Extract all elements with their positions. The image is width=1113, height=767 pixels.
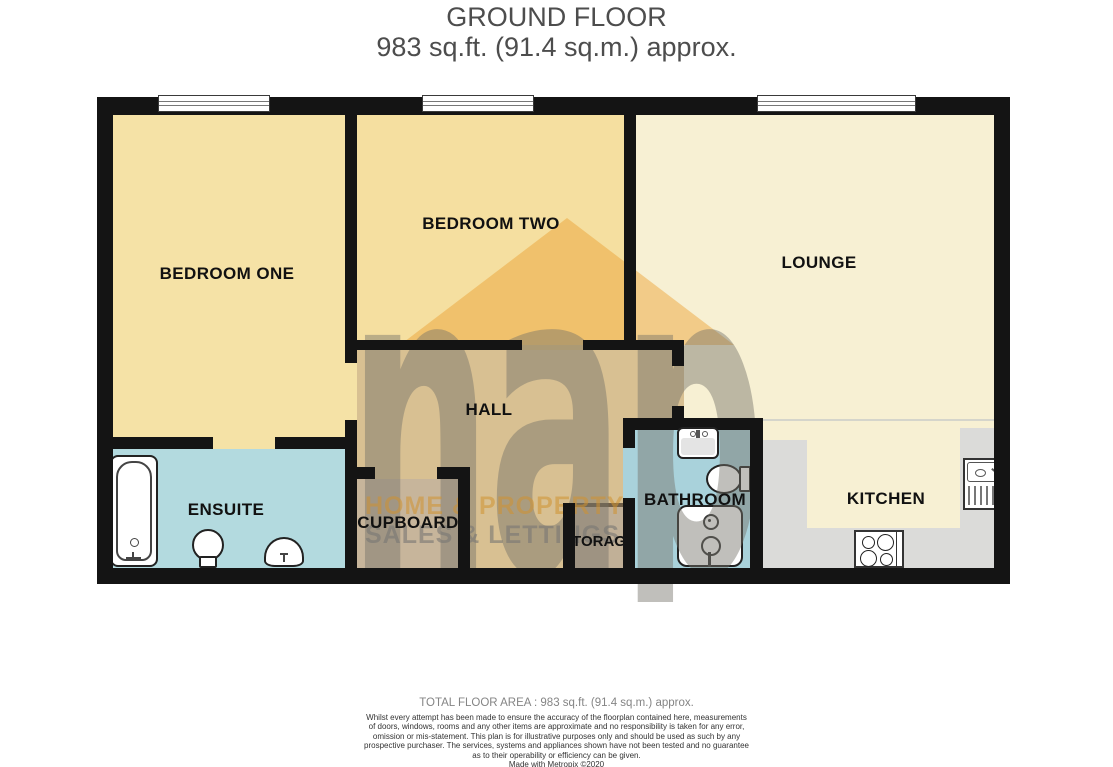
shower-icon bbox=[677, 505, 743, 567]
wall-bedroom-two-bottom-left bbox=[352, 340, 522, 350]
window-lounge bbox=[757, 95, 916, 112]
toilet-cistern-icon bbox=[199, 556, 217, 568]
door-bathroom bbox=[623, 448, 635, 498]
window-bedroom-one bbox=[158, 95, 270, 112]
door-bedroom-two-hall bbox=[522, 340, 583, 350]
page-title: GROUND FLOOR 983 sq.ft. (91.4 sq.m.) app… bbox=[207, 2, 907, 62]
wall-outer-bottom bbox=[97, 568, 1010, 584]
wall-bedroom-two-bottom-right bbox=[583, 340, 684, 350]
window-bedroom-two bbox=[422, 95, 534, 112]
wall-storage-left bbox=[563, 503, 575, 568]
room-label-ensuite: ENSUITE bbox=[188, 500, 264, 520]
wall-bedroom-two-lounge bbox=[624, 115, 636, 350]
room-hall-floor bbox=[470, 503, 563, 568]
footer: TOTAL FLOOR AREA : 983 sq.ft. (91.4 sq.m… bbox=[277, 697, 837, 767]
wall-bathroom-right bbox=[750, 430, 763, 568]
wall-outer-left bbox=[97, 97, 113, 584]
floor-name: GROUND FLOOR bbox=[207, 2, 907, 32]
total-floor-area: TOTAL FLOOR AREA : 983 sq.ft. (91.4 sq.m… bbox=[277, 697, 837, 709]
door-cupboard bbox=[375, 467, 437, 479]
door-hall-lounge bbox=[672, 366, 684, 406]
room-label-lounge: LOUNGE bbox=[781, 253, 856, 273]
door-bedroom-one-ensuite bbox=[213, 437, 275, 449]
wall-outer-right bbox=[994, 97, 1010, 584]
credit-text: Made with Metropix ©2020 bbox=[277, 760, 837, 767]
wall-bedroom-one-bottom-left bbox=[97, 437, 213, 449]
wall-bedroom-one-bottom-right bbox=[275, 437, 357, 449]
door-bedroom-one-hall bbox=[345, 363, 357, 420]
storage-door-line bbox=[575, 503, 623, 507]
room-label-bathroom: BATHROOM bbox=[644, 490, 746, 510]
room-hall-floor bbox=[470, 467, 623, 503]
wall-cupboard-right bbox=[458, 467, 470, 568]
wall-bedroom-one-right-upper bbox=[345, 115, 357, 363]
wall-bathroom-left-upper bbox=[623, 430, 635, 448]
hob-icon bbox=[854, 530, 904, 568]
wall-hall-lounge-lower bbox=[672, 406, 684, 418]
room-hall-floor bbox=[357, 418, 623, 467]
floor-area: 983 sq.ft. (91.4 sq.m.) approx. bbox=[207, 32, 907, 62]
room-label-storage-clip: STORAGE bbox=[575, 533, 623, 551]
room-label-storage: STORAGE bbox=[575, 533, 623, 550]
disclaimer-text: Whilst every attempt has been made to en… bbox=[277, 713, 837, 760]
wall-bathroom-left-lower bbox=[623, 498, 635, 568]
room-label-bedroom-one: BEDROOM ONE bbox=[160, 264, 295, 284]
room-hall-floor bbox=[357, 348, 684, 418]
room-label-hall: HALL bbox=[466, 400, 513, 420]
wall-hall-lounge-upper bbox=[672, 340, 684, 366]
bathtub-icon bbox=[110, 455, 158, 567]
floorplan-canvas: GROUND FLOOR 983 sq.ft. (91.4 sq.m.) app… bbox=[0, 0, 1113, 767]
wall-cupboard-top-left bbox=[352, 467, 375, 479]
room-label-cupboard: CUPBOARD bbox=[357, 513, 458, 533]
washbasin-icon bbox=[677, 427, 719, 459]
room-label-kitchen: KITCHEN bbox=[847, 489, 925, 509]
room-label-bedroom-two: BEDROOM TWO bbox=[422, 214, 560, 234]
kitchen-lounge-divider bbox=[763, 419, 994, 421]
